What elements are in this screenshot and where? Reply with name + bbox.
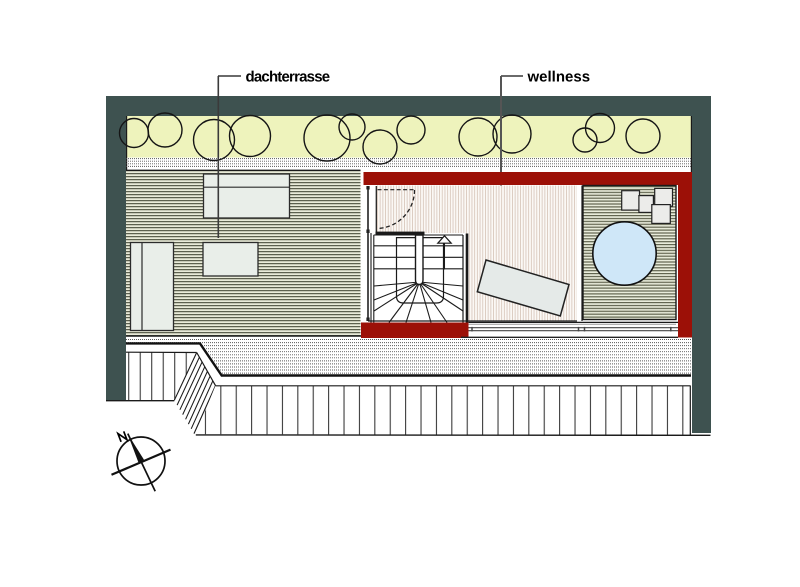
svg-text:wellness: wellness bbox=[527, 69, 591, 86]
svg-text:dachterrasse: dachterrasse bbox=[246, 69, 330, 86]
